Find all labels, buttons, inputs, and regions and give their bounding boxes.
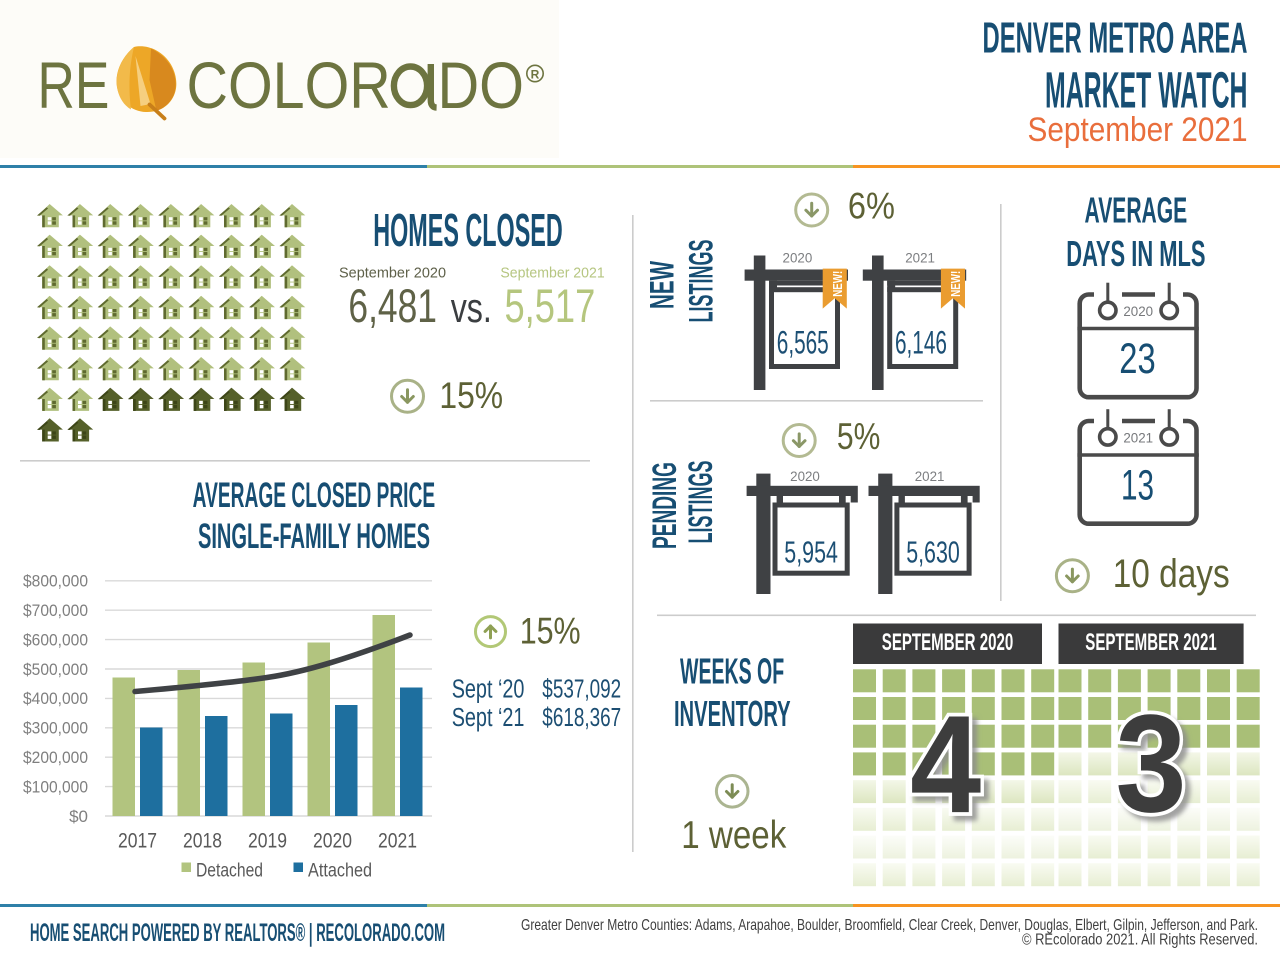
svg-text:10 days: 10 days [1113,552,1230,596]
svg-text:Detached: Detached [196,861,263,882]
svg-text:RE: RE [38,49,110,122]
svg-text:$618,367: $618,367 [542,702,621,732]
svg-text:2021: 2021 [905,251,935,267]
svg-text:Attached: Attached [308,861,372,882]
svg-text:AVERAGE: AVERAGE [1085,189,1188,230]
svg-text:$800,000: $800,000 [23,572,88,591]
svg-text:INVENTORY: INVENTORY [674,694,791,734]
svg-text:2020: 2020 [790,469,820,485]
svg-text:4: 4 [910,687,981,842]
svg-text:2019: 2019 [248,830,287,853]
svg-text:Sept ‘20: Sept ‘20 [452,674,525,704]
svg-text:5,954: 5,954 [784,535,838,570]
svg-text:DENVER METRO AREA: DENVER METRO AREA [983,15,1248,63]
svg-text:SINGLE-FAMILY HOMES: SINGLE-FAMILY HOMES [198,517,430,556]
svg-text:WEEKS OF: WEEKS OF [680,652,784,692]
svg-text:COLOR: COLOR [187,49,391,122]
svg-text:3: 3 [1116,686,1187,841]
svg-text:NEW!: NEW! [830,271,845,297]
svg-text:15%: 15% [439,374,503,416]
svg-text:2018: 2018 [183,830,222,853]
svg-text:5%: 5% [837,415,880,457]
svg-text:2020: 2020 [1123,304,1153,320]
svg-text:2021: 2021 [378,830,417,853]
svg-text:NEW: NEW [643,260,681,309]
svg-text:DAYS IN MLS: DAYS IN MLS [1066,233,1205,274]
svg-text:$400,000: $400,000 [23,689,88,708]
svg-text:6,146: 6,146 [895,324,947,361]
svg-text:© REcolorado 2021. All Rights: © REcolorado 2021. All Rights Reserved. [1022,932,1258,949]
svg-text:vs.: vs. [451,284,492,331]
svg-text:$700,000: $700,000 [23,601,88,620]
svg-text:DO: DO [438,49,525,122]
svg-text:$600,000: $600,000 [23,630,88,649]
svg-text:2021: 2021 [1123,430,1153,446]
svg-text:5,630: 5,630 [906,535,960,570]
svg-text:13: 13 [1121,462,1154,510]
svg-text:2017: 2017 [118,830,157,853]
svg-text:5,517: 5,517 [505,280,596,333]
svg-text:1 week: 1 week [681,814,786,857]
svg-text:$500,000: $500,000 [23,660,88,679]
svg-text:R: R [531,68,540,82]
svg-text:SEPTEMBER 2020: SEPTEMBER 2020 [882,630,1013,656]
svg-text:2021: 2021 [915,469,945,485]
svg-text:HOME SEARCH POWERED BY REALTOR: HOME SEARCH POWERED BY REALTORS® | RECOL… [30,920,445,947]
svg-text:September 2021: September 2021 [500,266,604,282]
svg-text:2020: 2020 [783,251,813,267]
svg-text:$537,092: $537,092 [542,674,621,704]
svg-text:$100,000: $100,000 [23,777,88,796]
svg-text:AVERAGE CLOSED PRICE: AVERAGE CLOSED PRICE [193,476,436,515]
svg-text:NEW!: NEW! [948,271,963,297]
svg-text:HOMES CLOSED: HOMES CLOSED [373,204,563,256]
svg-text:$300,000: $300,000 [23,719,88,738]
svg-text:September 2020: September 2020 [339,266,446,282]
svg-text:PENDING: PENDING [646,462,684,549]
svg-text:23: 23 [1119,335,1155,383]
svg-text:LISTINGS: LISTINGS [682,461,720,544]
svg-text:LISTINGS: LISTINGS [682,240,720,323]
svg-text:2020: 2020 [313,830,352,853]
svg-text:SEPTEMBER 2021: SEPTEMBER 2021 [1085,630,1216,656]
svg-text:15%: 15% [520,610,581,652]
svg-text:6,565: 6,565 [777,324,829,361]
svg-text:$200,000: $200,000 [23,748,88,767]
svg-text:6%: 6% [848,185,895,227]
svg-text:$0: $0 [69,807,88,826]
svg-text:September 2021: September 2021 [1028,111,1248,149]
svg-text:Sept ‘21: Sept ‘21 [452,702,525,732]
svg-text:6,481: 6,481 [348,280,437,333]
